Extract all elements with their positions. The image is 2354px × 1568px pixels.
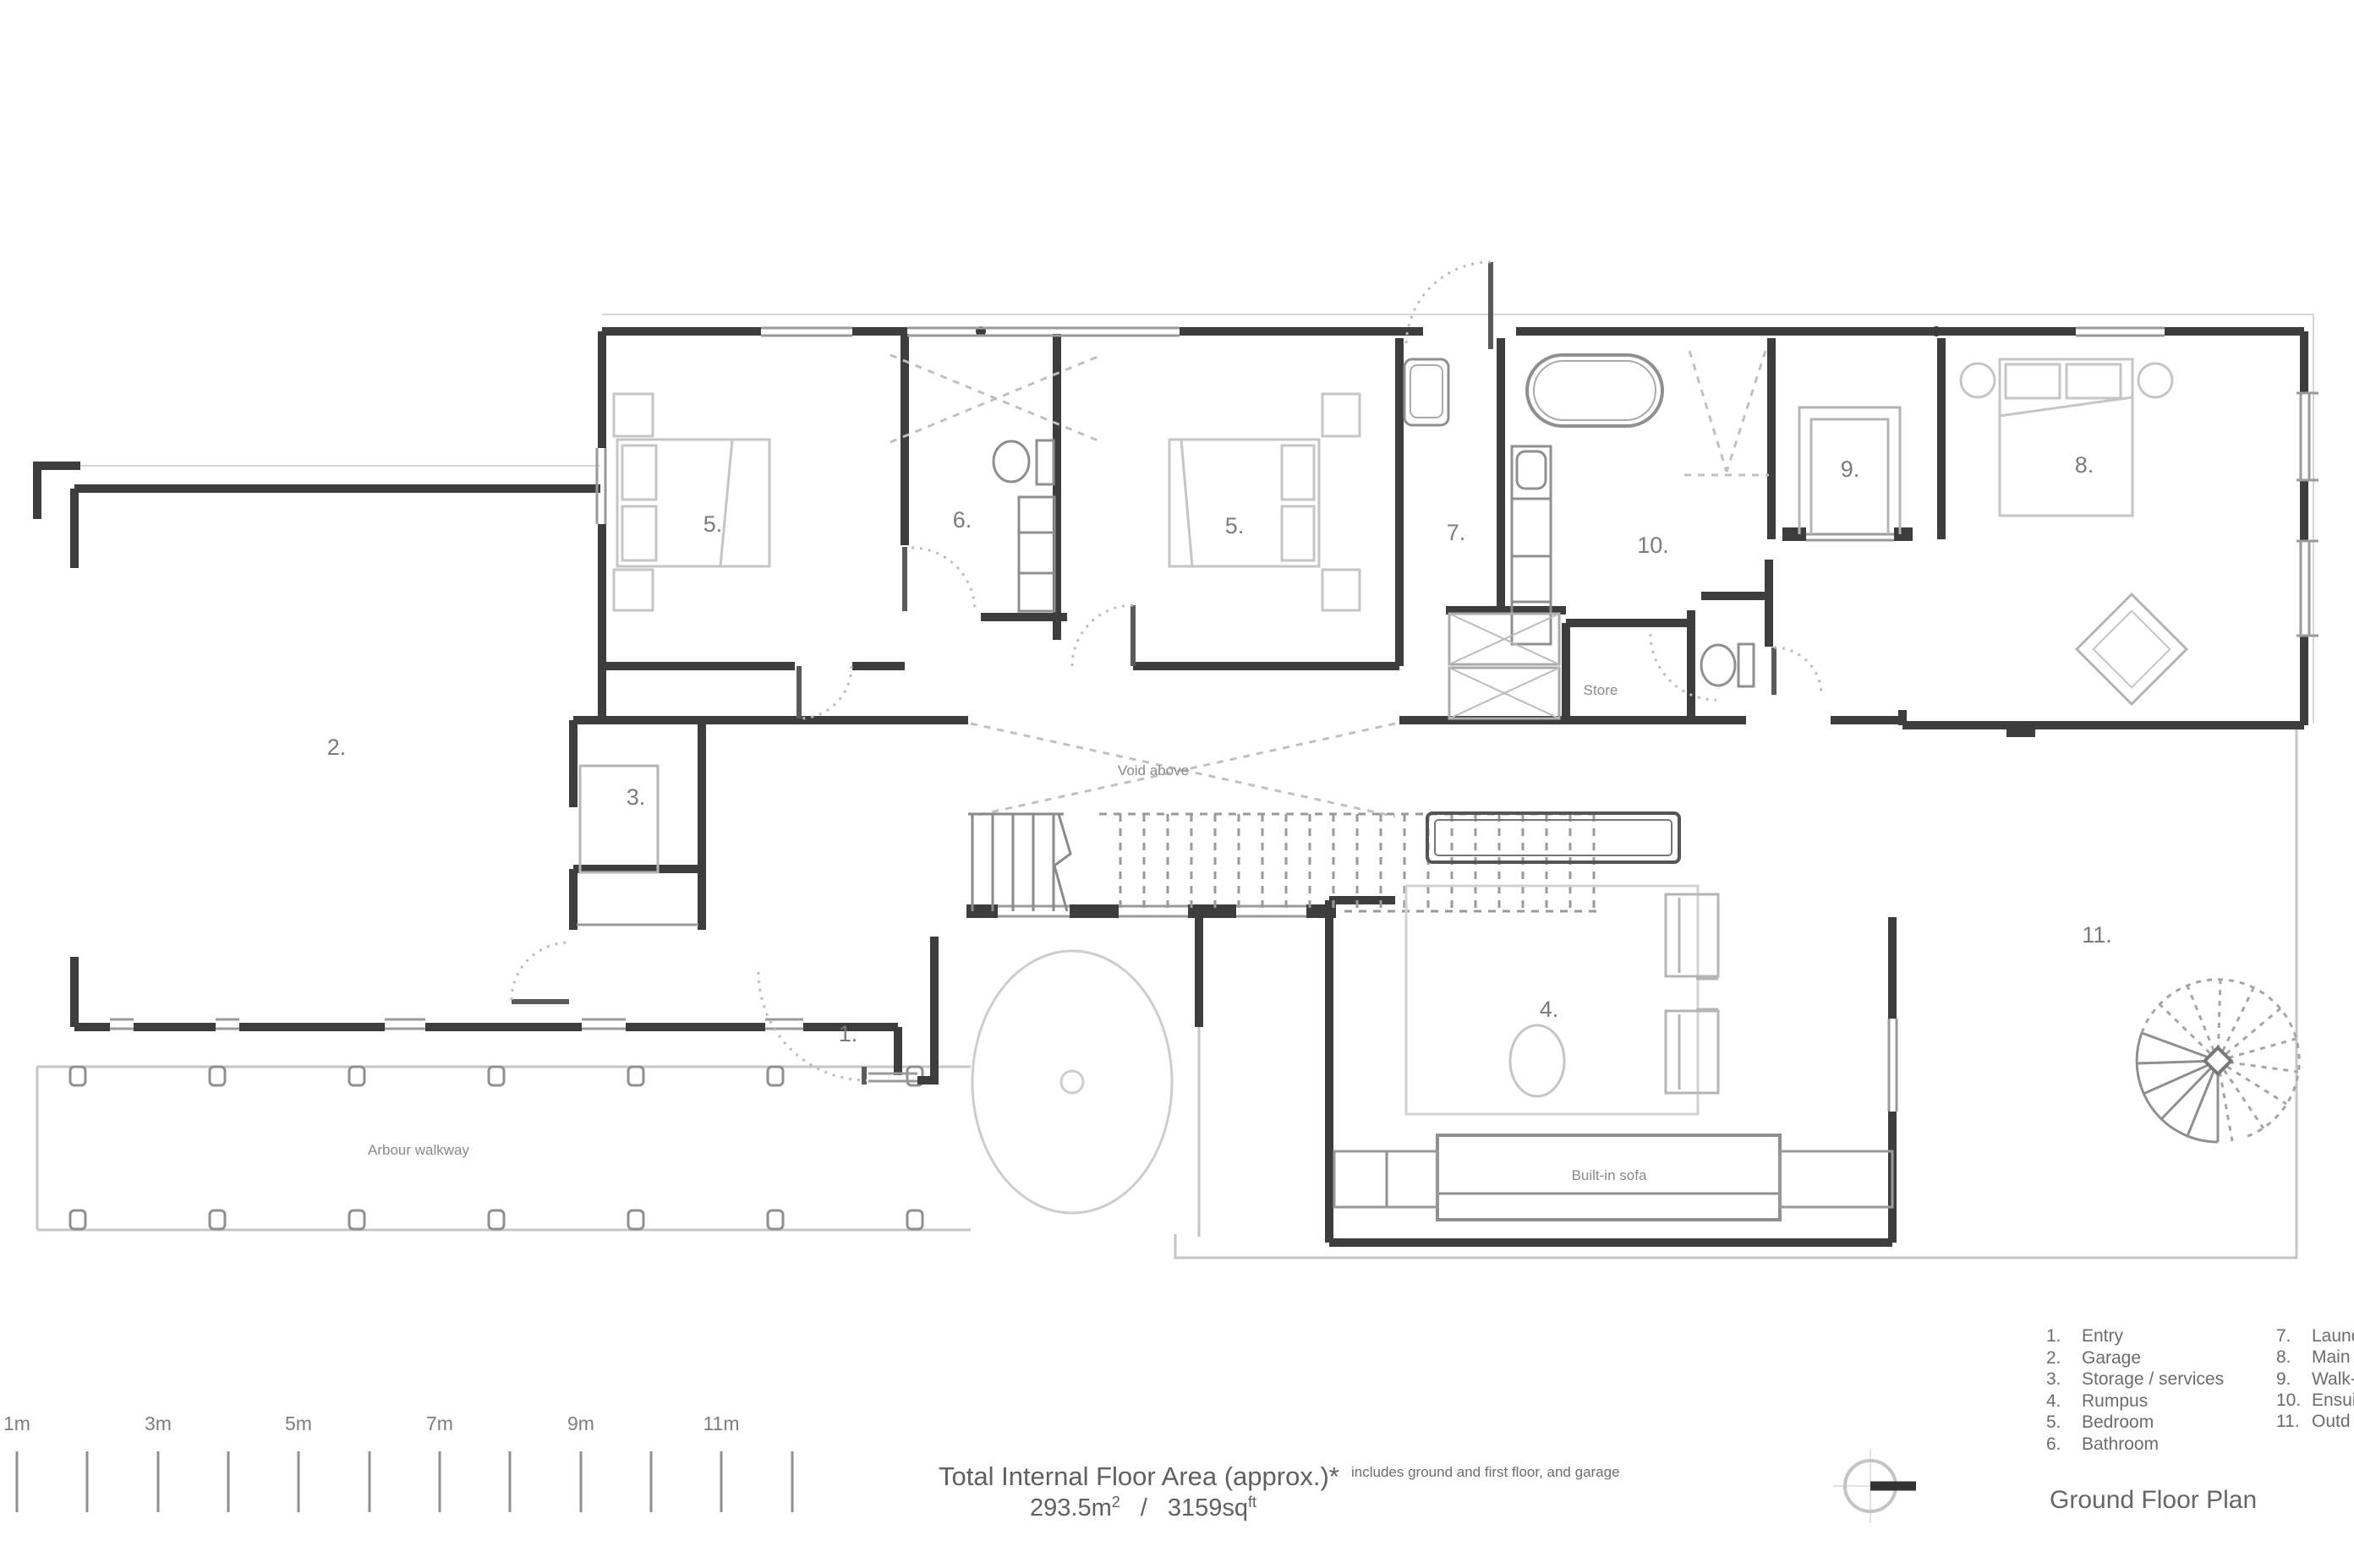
area-separator: / (1141, 1494, 1148, 1522)
legend-column-1: 1.Entry 2.Garage 3.Storage / services 4.… (2046, 1325, 2224, 1455)
legend-num: 9. (2276, 1369, 2312, 1390)
total-area-title: Total Internal Floor Area (approx.)* (939, 1461, 1339, 1491)
area-metric: 293.5m (1030, 1494, 1112, 1522)
footer-area-text: Total Internal Floor Area (approx.)* inc… (939, 1461, 1620, 1522)
scale-bar: 1m 3m 5m 7m 9m 11m (3, 1412, 792, 1512)
scale-label-11m: 11m (703, 1412, 739, 1434)
room-label-entry: 1. (839, 1021, 858, 1046)
floor-plan-page: { "title": "Ground Floor Plan", "colors"… (0, 0, 2354, 1568)
arbour-walkway-label: Arbour walkway (368, 1142, 469, 1158)
page-title: Ground Floor Plan (2050, 1486, 2257, 1515)
area-imperial: 3159sq (1168, 1494, 1248, 1522)
room-label-laundry: 7. (1447, 520, 1466, 545)
built-in-sofa-label: Built-in sofa (1572, 1167, 1647, 1183)
room-label-bedroom-a: 5. (703, 511, 723, 537)
room-label-garage: 2. (327, 735, 347, 760)
furniture (580, 359, 2172, 1213)
legend-num: 6. (2046, 1434, 2082, 1456)
arbour-walkway (37, 1067, 971, 1230)
legend-column-2: 7.Laund 8.Main 9.Walk- 10.Ensui 11.Outd (2276, 1325, 2354, 1432)
legend-item: 10.Ensui (2276, 1390, 2354, 1411)
door-swings (512, 262, 1821, 1080)
legend-label: Outd (2312, 1411, 2351, 1432)
store-label: Store (1584, 682, 1618, 698)
legend-num: 1. (2046, 1325, 2082, 1347)
floor-plan-drawing: 1m 3m 5m 7m 9m 11m 1. 2. 3. 4. 5. 6. 5. … (0, 0, 2354, 1568)
annotation-labels: Void above Store Built-in sofa Arbour wa… (368, 682, 1647, 1183)
legend-num: 4. (2046, 1390, 2082, 1412)
total-area-note: includes ground and first floor, and gar… (1351, 1464, 1620, 1480)
legend-label: Laund (2312, 1325, 2354, 1347)
legend-label: Main (2312, 1347, 2351, 1368)
legend-item: 4.Rumpus (2046, 1390, 2224, 1412)
room-label-bedroom-b: 5. (1225, 513, 1245, 538)
legend-item: 5.Bedroom (2046, 1412, 2224, 1434)
legend-label: Storage / services (2082, 1369, 2224, 1390)
room-label-rumpus: 4. (1540, 997, 1559, 1022)
spiral-stair (2137, 980, 2299, 1142)
legend-num: 11. (2276, 1411, 2312, 1432)
legend-label: Garage (2082, 1347, 2141, 1369)
legend-item: 2.Garage (2046, 1347, 2224, 1369)
legend-label: Rumpus (2082, 1390, 2148, 1412)
scale-label-5m: 5m (285, 1412, 312, 1434)
legend-item: 7.Laund (2276, 1325, 2354, 1347)
legend-item: 3.Storage / services (2046, 1369, 2224, 1390)
windows (110, 328, 2318, 1112)
legend-num: 7. (2276, 1325, 2312, 1347)
legend-num: 10. (2276, 1390, 2312, 1411)
legend-num: 8. (2276, 1347, 2312, 1368)
room-label-main-bedroom: 8. (2075, 452, 2094, 478)
scale-label-3m: 3m (145, 1412, 172, 1434)
room-label-outdoor: 11. (2082, 922, 2112, 948)
legend-num: 2. (2046, 1347, 2082, 1369)
legend-num: 5. (2046, 1412, 2082, 1434)
legend-item: 6.Bathroom (2046, 1434, 2224, 1456)
legend-label: Entry (2082, 1325, 2123, 1347)
room-label-storage: 3. (627, 784, 646, 810)
room-label-bathroom: 6. (953, 507, 972, 533)
legend-item: 9.Walk- (2276, 1369, 2354, 1390)
room-label-walk-in-robe: 9. (1841, 456, 1860, 482)
deck-boundary (1175, 729, 2297, 1258)
scale-label-7m: 7m (426, 1412, 453, 1434)
area-values: 293.5m2/3159sqft (1030, 1494, 1256, 1522)
area-imperial-sup: ft (1248, 1494, 1256, 1511)
north-indicator-icon (1833, 1449, 1916, 1523)
void-above-label: Void above (1118, 762, 1189, 779)
door-leaves (512, 262, 1774, 1084)
dashed-overhead-lines (890, 351, 1769, 817)
scale-label-1m: 1m (3, 1412, 30, 1434)
legend-label: Walk- (2312, 1369, 2354, 1390)
scale-label-9m: 9m (567, 1412, 594, 1434)
legend-item: 8.Main (2276, 1347, 2354, 1368)
legend-label: Bedroom (2082, 1412, 2154, 1434)
area-metric-sup: 2 (1112, 1494, 1120, 1511)
legend-label: Bathroom (2082, 1434, 2159, 1456)
legend-item: 1.Entry (2046, 1325, 2224, 1347)
legend-item: 11.Outd (2276, 1411, 2354, 1432)
room-label-ensuite: 10. (1637, 533, 1669, 558)
legend-num: 3. (2046, 1369, 2082, 1390)
legend-label: Ensui (2312, 1390, 2354, 1411)
